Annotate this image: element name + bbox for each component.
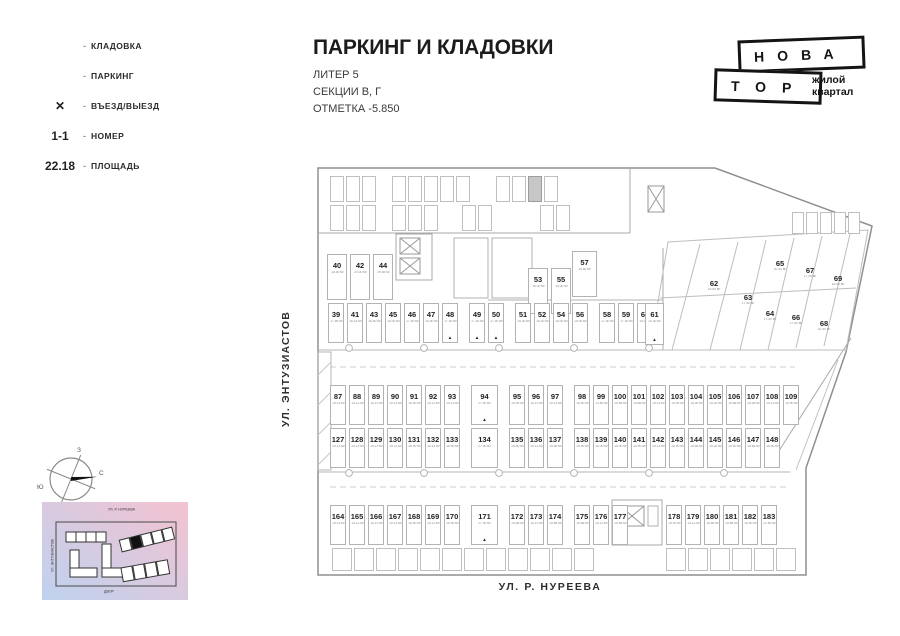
spot-area: 15.00 м² bbox=[574, 320, 587, 323]
parking-row-a1: 40 18.50 м² 42 20.00 м² 44 19.65 м² bbox=[327, 254, 393, 300]
parking-spot: 98 15.90 м² bbox=[574, 385, 590, 425]
parking-spot: 100 15.85 м² bbox=[612, 385, 628, 425]
storage-cell bbox=[486, 548, 506, 571]
storage-cell bbox=[848, 212, 860, 234]
parking-spot: 133 15.90 м² bbox=[444, 428, 460, 468]
storage-strip-bottom-2 bbox=[666, 548, 796, 571]
spot-area: 16.15 м² bbox=[349, 320, 362, 323]
parking-spot: 135 15.90 м² bbox=[509, 428, 525, 468]
spot-area: 15.13 м² bbox=[530, 445, 543, 448]
parking-spot: 99 13.80 м² bbox=[593, 385, 609, 425]
spot-number: 51 bbox=[519, 311, 527, 319]
spot-area: 15.85 м² bbox=[576, 522, 589, 525]
spot-number: 67 bbox=[792, 267, 828, 275]
spot-number: 92 bbox=[429, 393, 437, 401]
storage-strip-topright bbox=[792, 212, 860, 234]
storage-cell bbox=[442, 548, 462, 571]
spot-area: 15.00 м² bbox=[532, 285, 545, 288]
spot-number: 55 bbox=[557, 276, 565, 284]
spot-number: 62 bbox=[696, 280, 732, 288]
parking-spot: 165 15.13 м² bbox=[349, 505, 365, 545]
storage-cell bbox=[806, 212, 818, 234]
spot-number: 59 bbox=[622, 311, 630, 319]
spot-area: 17.85 м² bbox=[330, 320, 343, 323]
spot-number: 89 bbox=[372, 393, 380, 401]
spot-area: 15.00 м² bbox=[555, 320, 568, 323]
spot-area: 15.00 м² bbox=[387, 320, 400, 323]
spot-number: 178 bbox=[668, 513, 681, 521]
spot-area: 19.00 м² bbox=[668, 522, 681, 525]
spot-number: 69 bbox=[820, 275, 856, 283]
parking-spot: 94 27.00 м² bbox=[471, 385, 498, 425]
minimap-street-left: УЛ. ЭНТУЗИАСТОВ bbox=[51, 539, 55, 572]
storage-cell bbox=[556, 205, 570, 231]
spot-number: 49 bbox=[473, 311, 481, 319]
parking-spot: 93 15.13 м² bbox=[444, 385, 460, 425]
spot-area: 15.13 м² bbox=[351, 402, 364, 405]
storage-cell bbox=[440, 176, 454, 202]
spot-area: 15.90 м² bbox=[671, 445, 684, 448]
storage-cell bbox=[544, 176, 558, 202]
spot-number: 134 bbox=[478, 436, 491, 444]
storage-cell bbox=[820, 212, 832, 234]
spot-area: 14.30 м² bbox=[648, 320, 661, 323]
parking-spot: 88 15.13 м² bbox=[349, 385, 365, 425]
parking-spot-diagonal: 68 20.50 м² bbox=[806, 320, 842, 334]
spot-area: 15.13 м² bbox=[687, 522, 700, 525]
parking-spot: 49 17.40 м² bbox=[469, 303, 485, 343]
spot-area: 15.90 м² bbox=[744, 522, 757, 525]
parking-spot: 177 15.85 м² bbox=[612, 505, 628, 545]
parking-spot: 61 14.30 м² bbox=[645, 303, 664, 345]
spot-area: 18.50 м² bbox=[331, 271, 344, 274]
spot-area: 15.85 м² bbox=[690, 445, 703, 448]
spot-number: 95 bbox=[513, 393, 521, 401]
spot-area: 15.85 м² bbox=[725, 522, 738, 525]
spot-area: 15.13 м² bbox=[530, 522, 543, 525]
parking-spot: 106 15.85 м² bbox=[726, 385, 742, 425]
spot-number: 109 bbox=[785, 393, 798, 401]
parking-spot: 175 15.85 м² bbox=[574, 505, 590, 545]
spot-area: 15.13 м² bbox=[332, 522, 345, 525]
storage-cell bbox=[688, 548, 708, 571]
storage-cell bbox=[392, 176, 406, 202]
spot-area: 15.13 м² bbox=[530, 402, 543, 405]
spot-number: 58 bbox=[603, 311, 611, 319]
spot-number: 182 bbox=[744, 513, 757, 521]
spot-number: 61 bbox=[650, 311, 658, 319]
spot-number: 128 bbox=[351, 436, 364, 444]
parking-spot: 131 16.90 м² bbox=[406, 428, 422, 468]
parking-spot: 143 15.90 м² bbox=[669, 428, 685, 468]
storage-cell bbox=[508, 548, 528, 571]
parking-spot: 183 21.80 м² bbox=[761, 505, 777, 545]
spot-area: 15.13 м² bbox=[549, 402, 562, 405]
storage-cell bbox=[408, 176, 422, 202]
spot-number: 175 bbox=[576, 513, 589, 521]
storage-strip-top-1a bbox=[330, 176, 376, 202]
spot-area: 17.40 м² bbox=[406, 320, 419, 323]
spot-number: 43 bbox=[370, 311, 378, 319]
spot-number: 57 bbox=[580, 259, 588, 267]
parking-spot: 182 15.90 м² bbox=[742, 505, 758, 545]
parking-spot: 105 15.20 м² bbox=[707, 385, 723, 425]
spot-area: 15.90 м² bbox=[446, 522, 459, 525]
parking-spot: 48 17.40 м² bbox=[442, 303, 458, 343]
parking-row-b: 39 17.85 м² 41 16.15 м² 43 16.50 м² 45 1… bbox=[328, 303, 653, 343]
storage-cell bbox=[732, 548, 752, 571]
parking-spot: 40 18.50 м² bbox=[327, 254, 347, 300]
spot-area: 15.13 м² bbox=[370, 402, 383, 405]
spot-area: 15.00 м² bbox=[555, 285, 568, 288]
storage-cell bbox=[330, 205, 344, 231]
parking-spot: 146 15.90 м² bbox=[726, 428, 742, 468]
spot-area: 27.30 м² bbox=[478, 522, 491, 525]
spot-area: 15.85 м² bbox=[614, 522, 627, 525]
parking-spot: 167 15.13 м² bbox=[387, 505, 403, 545]
spot-area: 15.13 м² bbox=[351, 522, 364, 525]
spot-area: 15.85 м² bbox=[633, 402, 646, 405]
parking-spot: 89 15.13 м² bbox=[368, 385, 384, 425]
storage-cell bbox=[362, 176, 376, 202]
parking-spot: 174 15.85 м² bbox=[547, 505, 563, 545]
spot-number: 48 bbox=[446, 311, 454, 319]
spot-area: 15.13 м² bbox=[389, 522, 402, 525]
parking-spot: 52 15.00 м² bbox=[534, 303, 550, 343]
spot-area: 15.90 м² bbox=[633, 445, 646, 448]
minimap-street-top: УЛ. Р. НУРЕЕВА bbox=[108, 508, 135, 512]
spot-area: 17.50 м² bbox=[738, 302, 758, 305]
parking-spot: 87 15.13 м² bbox=[330, 385, 346, 425]
parking-spot-diagonal: 63 17.50 м² bbox=[730, 294, 766, 308]
spot-number: 139 bbox=[595, 436, 608, 444]
spot-area: 15.90 м² bbox=[408, 522, 421, 525]
spot-number: 41 bbox=[351, 311, 359, 319]
parking-row-e2: 178 19.00 м² 179 15.13 м² 180 15.85 м² 1… bbox=[666, 505, 777, 545]
storage-cell bbox=[424, 176, 438, 202]
spot-area: 19.80 м² bbox=[578, 268, 591, 271]
parking-spot: 44 19.65 м² bbox=[373, 254, 393, 300]
spot-area: 15.13 м² bbox=[332, 402, 345, 405]
spot-number: 63 bbox=[730, 294, 766, 302]
compass-north: С bbox=[99, 470, 104, 477]
parking-spot: 144 15.85 м² bbox=[688, 428, 704, 468]
spot-number: 54 bbox=[557, 311, 565, 319]
spot-number: 53 bbox=[534, 276, 542, 284]
parking-spot: 50 17.40 м² bbox=[488, 303, 504, 343]
spot-area: 17.40 м² bbox=[490, 320, 503, 323]
spot-number: 140 bbox=[614, 436, 627, 444]
spot-number: 170 bbox=[446, 513, 459, 521]
parking-spot: 95 15.90 м² bbox=[509, 385, 525, 425]
parking-spot: 145 15.20 м² bbox=[707, 428, 723, 468]
spot-area: 20.50 м² bbox=[814, 328, 834, 331]
spot-number: 176 bbox=[595, 513, 608, 521]
parking-spot: 136 15.13 м² bbox=[528, 428, 544, 468]
spot-number: 88 bbox=[353, 393, 361, 401]
spot-number: 101 bbox=[633, 393, 646, 401]
parking-spot: 148 15.90 м² bbox=[764, 428, 780, 468]
parking-spot: 59 17.40 м² bbox=[618, 303, 634, 343]
parking-spot: 57 19.80 м² bbox=[572, 251, 597, 297]
spot-area: 15.90 м² bbox=[690, 402, 703, 405]
spot-area: 17.50 м² bbox=[800, 275, 820, 278]
parking-spot: 180 15.85 м² bbox=[704, 505, 720, 545]
spot-number: 138 bbox=[576, 436, 589, 444]
spot-area: 15.90 м² bbox=[446, 445, 459, 448]
spot-number: 167 bbox=[389, 513, 402, 521]
parking-spot-57: 57 19.80 м² bbox=[572, 251, 597, 297]
spot-area: 13.80 м² bbox=[595, 402, 608, 405]
parking-spot: 141 15.90 м² bbox=[631, 428, 647, 468]
spot-number: 142 bbox=[652, 436, 665, 444]
spot-number: 127 bbox=[332, 436, 345, 444]
spot-number: 87 bbox=[334, 393, 342, 401]
spot-area: 15.13 м² bbox=[427, 522, 440, 525]
spot-number: 99 bbox=[597, 393, 605, 401]
spot-number: 68 bbox=[806, 320, 842, 328]
spot-area: 15.13 м² bbox=[370, 445, 383, 448]
spot-number: 145 bbox=[709, 436, 722, 444]
parking-spot: 134 27.00 м² bbox=[471, 428, 498, 468]
storage-cell bbox=[398, 548, 418, 571]
storage-cell bbox=[776, 548, 796, 571]
storage-cell bbox=[754, 548, 774, 571]
spot-number: 50 bbox=[492, 311, 500, 319]
storage-strip-bottom-1 bbox=[332, 548, 594, 571]
spot-area: 15.50 м² bbox=[425, 320, 438, 323]
parking-spot: 139 15.00 м² bbox=[593, 428, 609, 468]
spot-number: 47 bbox=[427, 311, 435, 319]
spot-number: 100 bbox=[614, 393, 627, 401]
spot-area: 15.13 м² bbox=[427, 402, 440, 405]
spot-area: 16.90 м² bbox=[408, 402, 421, 405]
spot-number: 137 bbox=[549, 436, 562, 444]
storage-cell bbox=[376, 548, 396, 571]
parking-spot-diagonal: 62 19.84 м² bbox=[696, 280, 732, 294]
storage-strip-top-2d bbox=[540, 205, 570, 231]
spot-number: 179 bbox=[687, 513, 700, 521]
storage-cell bbox=[528, 176, 542, 202]
spot-area: 15.13 м² bbox=[595, 522, 608, 525]
spot-number: 180 bbox=[706, 513, 719, 521]
parking-spot: 178 19.00 м² bbox=[666, 505, 682, 545]
spot-number: 143 bbox=[671, 436, 684, 444]
parking-spot: 166 15.13 м² bbox=[368, 505, 384, 545]
parking-spot: 171 27.30 м² bbox=[471, 505, 498, 545]
storage-cell bbox=[834, 212, 846, 234]
parking-spot: 168 15.90 м² bbox=[406, 505, 422, 545]
parking-spot: 90 15.13 м² bbox=[387, 385, 403, 425]
parking-spot: 170 15.90 м² bbox=[444, 505, 460, 545]
spot-area: 15.20 м² bbox=[709, 445, 722, 448]
spot-area: 17.40 м² bbox=[620, 320, 633, 323]
spot-area: 15.85 м² bbox=[549, 522, 562, 525]
parking-spot: 47 15.50 м² bbox=[423, 303, 439, 343]
parking-spot: 164 15.13 м² bbox=[330, 505, 346, 545]
parking-spot: 132 15.13 м² bbox=[425, 428, 441, 468]
storage-cell bbox=[464, 548, 484, 571]
parking-spot: 42 20.00 м² bbox=[350, 254, 370, 300]
storage-cell bbox=[540, 205, 554, 231]
spot-number: 46 bbox=[408, 311, 416, 319]
spot-number: 174 bbox=[549, 513, 562, 521]
spot-area: 15.13 м² bbox=[652, 402, 665, 405]
parking-spot: 54 15.00 м² bbox=[553, 303, 569, 343]
storage-cell bbox=[512, 176, 526, 202]
spot-area: 15.48 м² bbox=[747, 402, 760, 405]
parking-spot: 147 15.85 м² bbox=[745, 428, 761, 468]
spot-area: 15.85 м² bbox=[747, 445, 760, 448]
spot-number: 102 bbox=[652, 393, 665, 401]
parking-spot: 128 15.13 м² bbox=[349, 428, 365, 468]
parking-spot: 39 17.85 м² bbox=[328, 303, 344, 343]
spot-number: 98 bbox=[578, 393, 586, 401]
spot-number: 108 bbox=[766, 393, 779, 401]
parking-spot: 109 15.90 м² bbox=[783, 385, 799, 425]
spot-area: 15.85 м² bbox=[511, 522, 524, 525]
spot-area: 15.13 м² bbox=[332, 445, 345, 448]
spot-area: 17.50 м² bbox=[786, 322, 806, 325]
parking-spot: 51 15.30 м² bbox=[515, 303, 531, 343]
spot-area: 15.13 м² bbox=[370, 522, 383, 525]
minimap-buildings bbox=[42, 502, 188, 600]
storage-strip-top-1b bbox=[392, 176, 470, 202]
spot-number: 181 bbox=[725, 513, 738, 521]
parking-spot: 127 15.13 м² bbox=[330, 428, 346, 468]
spot-area: 15.90 м² bbox=[576, 445, 589, 448]
spot-area: 15.90 м² bbox=[511, 445, 524, 448]
spot-number: 103 bbox=[671, 393, 684, 401]
parking-spot: 46 17.40 м² bbox=[404, 303, 420, 343]
spot-number: 56 bbox=[576, 311, 584, 319]
spot-number: 105 bbox=[709, 393, 722, 401]
spot-number: 104 bbox=[690, 393, 703, 401]
parking-spot: 102 15.13 м² bbox=[650, 385, 666, 425]
spot-number: 144 bbox=[690, 436, 703, 444]
parking-spot: 169 15.13 м² bbox=[425, 505, 441, 545]
storage-cell bbox=[666, 548, 686, 571]
spot-number: 147 bbox=[747, 436, 760, 444]
spot-area: 21.80 м² bbox=[763, 522, 776, 525]
spot-number: 44 bbox=[379, 262, 387, 270]
spot-number: 97 bbox=[551, 393, 559, 401]
spot-number: 141 bbox=[633, 436, 646, 444]
parking-spot: 43 16.50 м² bbox=[366, 303, 382, 343]
spot-number: 39 bbox=[332, 311, 340, 319]
parking-spot: 107 15.48 м² bbox=[745, 385, 761, 425]
spot-number: 131 bbox=[408, 436, 421, 444]
parking-spot: 173 15.13 м² bbox=[528, 505, 544, 545]
storage-cell bbox=[332, 548, 352, 571]
spot-area: 17.40 м² bbox=[601, 320, 614, 323]
spot-number: 146 bbox=[728, 436, 741, 444]
parking-spot: 142 15.13 м² bbox=[650, 428, 666, 468]
parking-spot: 138 15.90 м² bbox=[574, 428, 590, 468]
spot-area: 27.00 м² bbox=[478, 445, 491, 448]
spot-number: 40 bbox=[333, 262, 341, 270]
parking-spot: 140 15.90 м² bbox=[612, 428, 628, 468]
spot-number: 107 bbox=[747, 393, 760, 401]
storage-cell bbox=[424, 205, 438, 231]
spot-area: 15.13 м² bbox=[766, 402, 779, 405]
storage-cell bbox=[792, 212, 804, 234]
spot-area: 15.00 м² bbox=[595, 445, 608, 448]
parking-spot: 130 15.13 м² bbox=[387, 428, 403, 468]
spot-area: 15.00 м² bbox=[536, 320, 549, 323]
parking-row-c: 87 15.13 м² 88 15.13 м² 89 15.13 м² 90 1… bbox=[330, 385, 799, 425]
spot-area: 15.90 м² bbox=[511, 402, 524, 405]
spot-area: 15.85 м² bbox=[706, 522, 719, 525]
spot-number: 90 bbox=[391, 393, 399, 401]
spot-number: 96 bbox=[532, 393, 540, 401]
storage-cell bbox=[462, 205, 476, 231]
parking-spot: 104 15.90 м² bbox=[688, 385, 704, 425]
street-label-nureeva: УЛ. Р. НУРЕЕВА bbox=[440, 581, 660, 593]
spot-number: 171 bbox=[478, 513, 491, 521]
storage-cell bbox=[478, 205, 492, 231]
spot-number: 135 bbox=[511, 436, 524, 444]
storage-cell bbox=[710, 548, 730, 571]
storage-cell bbox=[392, 205, 406, 231]
parking-spot: 45 15.00 м² bbox=[385, 303, 401, 343]
storage-cell bbox=[362, 205, 376, 231]
spot-number: 42 bbox=[356, 262, 364, 270]
spot-area: 17.40 м² bbox=[444, 320, 457, 323]
site-minimap: УЛ. Р. НУРЕЕВА УЛ. ЭНТУЗИАСТОВ ДВОР bbox=[42, 502, 188, 600]
spot-area: 15.30 м² bbox=[517, 320, 530, 323]
spot-number: 129 bbox=[370, 436, 383, 444]
spot-number: 106 bbox=[728, 393, 741, 401]
storage-cell bbox=[346, 176, 360, 202]
spot-area: 19.84 м² bbox=[704, 288, 724, 291]
parking-spot-diagonal: 69 18.50 м² bbox=[820, 275, 856, 289]
parking-spot: 91 16.90 м² bbox=[406, 385, 422, 425]
parking-spot: 103 15.90 м² bbox=[669, 385, 685, 425]
spot-number: 177 bbox=[614, 513, 627, 521]
parking-spot: 176 15.13 м² bbox=[593, 505, 609, 545]
storage-cell bbox=[330, 176, 344, 202]
spot-area: 18.50 м² bbox=[828, 283, 848, 286]
spot-area: 19.65 м² bbox=[377, 271, 390, 274]
spot-number: 91 bbox=[410, 393, 418, 401]
spot-area: 15.13 м² bbox=[389, 445, 402, 448]
spot-area: 15.13 м² bbox=[389, 402, 402, 405]
spot-number: 93 bbox=[448, 393, 456, 401]
spot-number: 172 bbox=[511, 513, 524, 521]
spot-number: 183 bbox=[763, 513, 776, 521]
spot-number: 94 bbox=[480, 393, 488, 401]
storage-strip-top-2b bbox=[392, 205, 438, 231]
spot-area: 15.13 м² bbox=[446, 402, 459, 405]
storage-cell bbox=[530, 548, 550, 571]
spot-number: 165 bbox=[351, 513, 364, 521]
parking-spot-61: 61 14.30 м² bbox=[645, 303, 664, 345]
street-label-entuziastov: УЛ. ЭНТУЗИАСТОВ bbox=[280, 307, 294, 431]
storage-cell bbox=[456, 176, 470, 202]
spot-area: 15.85 м² bbox=[549, 445, 562, 448]
compass-west: З bbox=[77, 447, 81, 454]
spot-area: 15.90 м² bbox=[614, 445, 627, 448]
spot-area: 16.90 м² bbox=[408, 445, 421, 448]
spot-number: 133 bbox=[446, 436, 459, 444]
spot-area: 17.50 м² bbox=[760, 318, 780, 321]
storage-cell bbox=[552, 548, 572, 571]
spot-area: 15.90 м² bbox=[766, 445, 779, 448]
parking-row-e1: 164 15.13 м² 165 15.13 м² 166 15.13 м² 1… bbox=[330, 505, 628, 545]
parking-spot: 58 17.40 м² bbox=[599, 303, 615, 343]
spot-area: 15.90 м² bbox=[576, 402, 589, 405]
